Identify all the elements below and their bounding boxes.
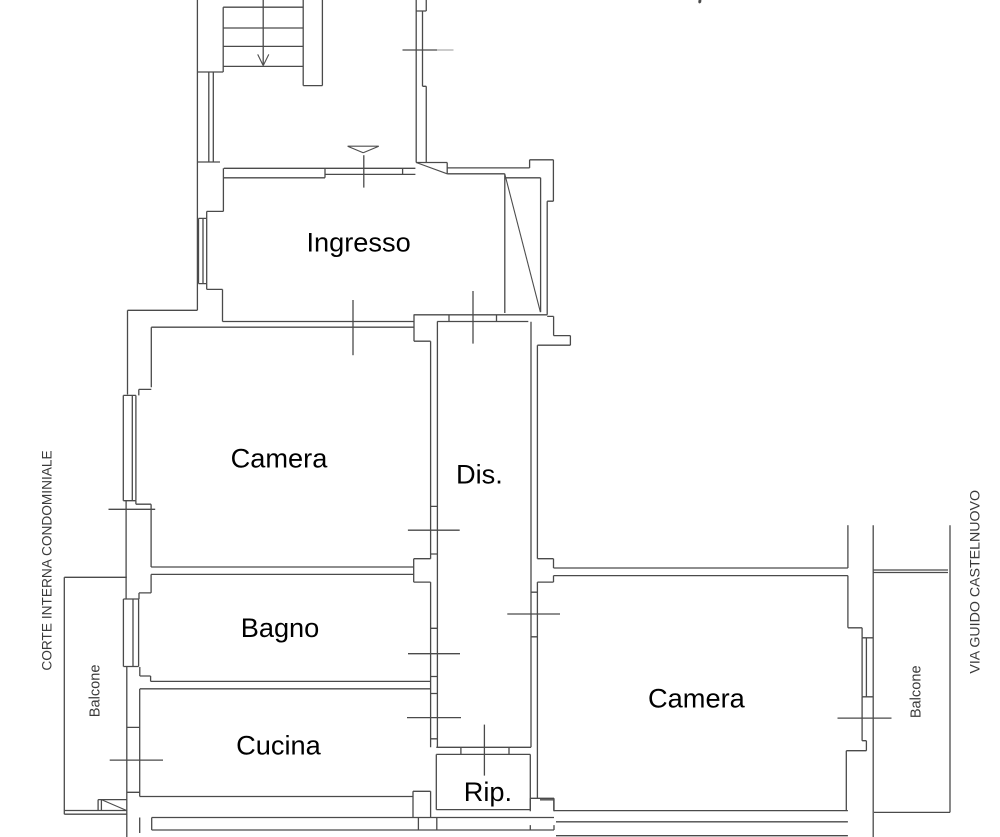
svg-text:Balcone: Balcone <box>88 665 104 718</box>
svg-text:Dis.: Dis. <box>456 459 503 490</box>
svg-text:Camera: Camera <box>648 683 746 714</box>
svg-text:Rip.: Rip. <box>464 776 512 807</box>
svg-text:Camera: Camera <box>231 443 329 474</box>
svg-text:Bagno: Bagno <box>241 612 320 643</box>
svg-text:Cucina: Cucina <box>236 729 322 760</box>
svg-text:VIA GUIDO CASTELNUOVO: VIA GUIDO CASTELNUOVO <box>968 490 984 674</box>
svg-text:Balcone: Balcone <box>909 665 925 718</box>
svg-text:CORTE INTERNA CONDOMINIALE: CORTE INTERNA CONDOMINIALE <box>40 450 55 670</box>
svg-text:Ingresso: Ingresso <box>306 226 410 257</box>
